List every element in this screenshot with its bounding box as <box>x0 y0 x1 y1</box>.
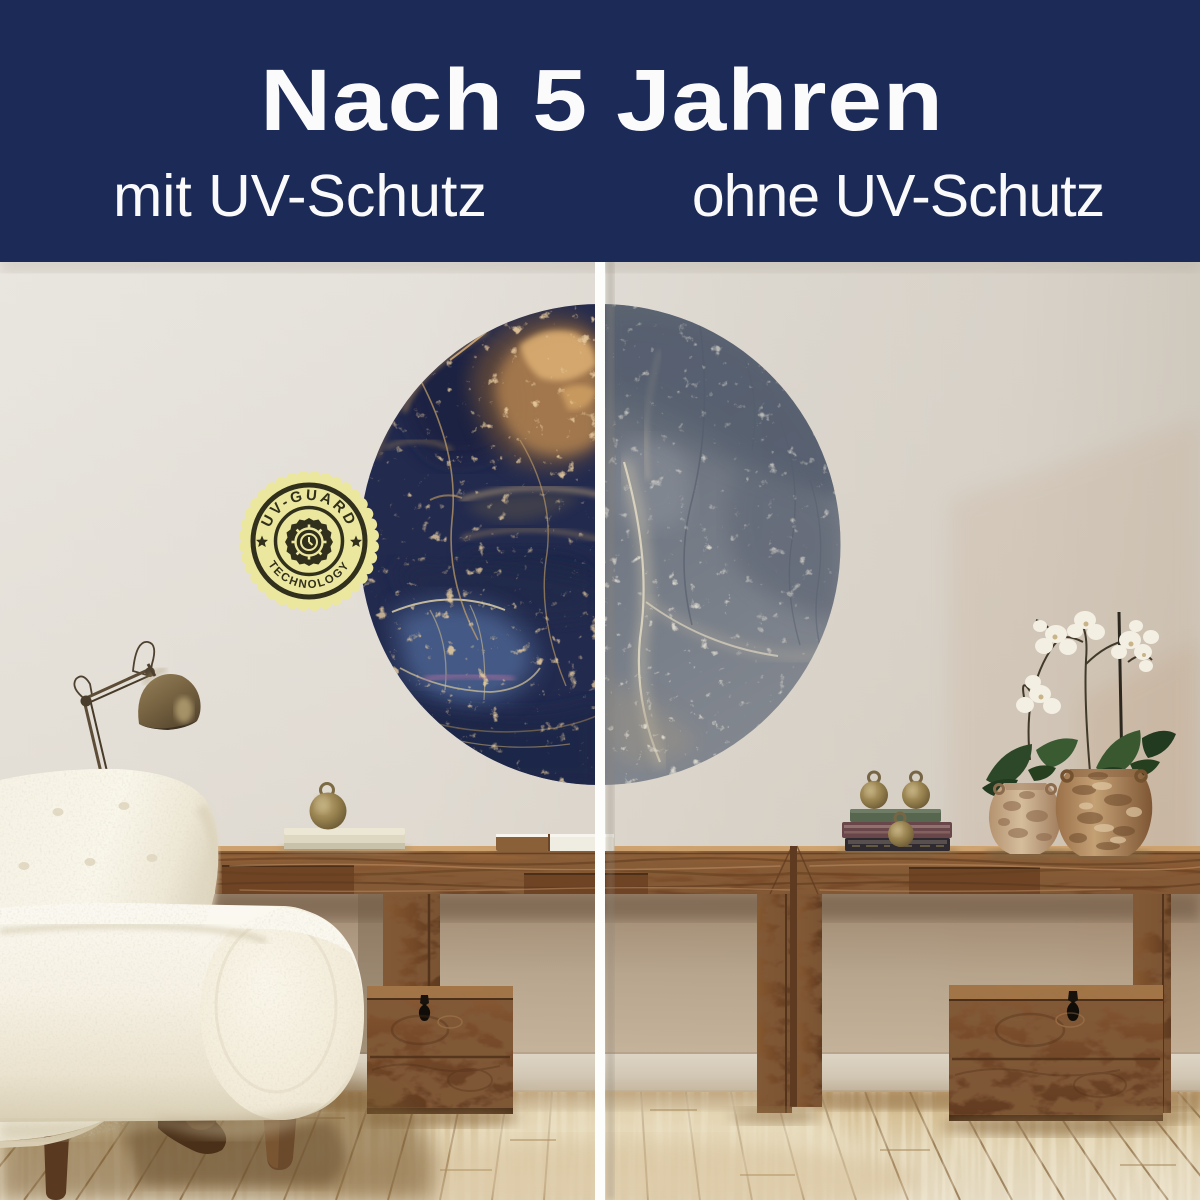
svg-text:ohne UV-Schutz: ohne UV-Schutz <box>692 163 1104 229</box>
svg-text:mit UV-Schutz: mit UV-Schutz <box>113 163 487 229</box>
svg-text:Nach 5 Jahren: Nach 5 Jahren <box>260 51 944 148</box>
